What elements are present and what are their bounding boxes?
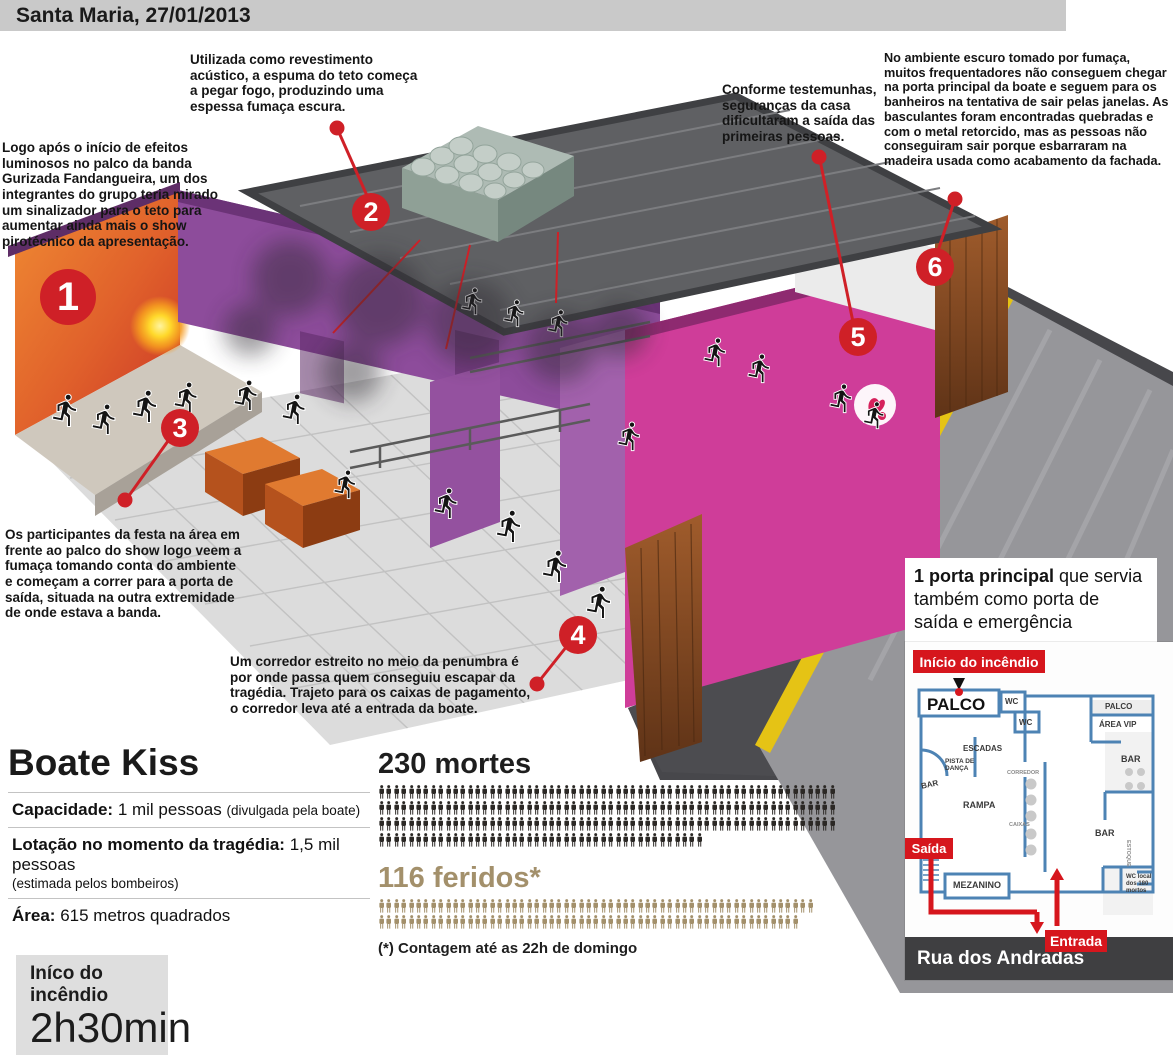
room-rampa: RAMPA [963,800,995,810]
fire-start-box: Iníco do incêndio 2h30min [16,955,168,1055]
fire-origin-tag: Início do incêndio [913,650,1045,673]
header-bar: Santa Maria, 27/01/2013 [0,0,1066,31]
stat-occupancy: Lotação no momento da tragédia: 1,5 mil … [8,827,370,898]
main-door-note: 1 porta principal que servia também como… [905,558,1157,643]
deaths-pictograms [378,785,848,848]
callout-3-text: Os participantes da festa na área em fre… [5,527,243,621]
stat-capacity-value: 1 mil pessoas [113,800,226,819]
injured-title: 116 feridos* [378,862,848,895]
deaths-title: 230 mortes [378,748,848,781]
stat-occupancy-label: Lotação no momento da tragédia: [12,835,285,854]
room-wc3: WC local dos 180 mortos [1126,874,1152,896]
step-badge-5: 5 [839,318,877,356]
room-mezanino: MEZANINO [953,880,1001,890]
casualties-panel: 230 mortes 116 feridos* (*) Contagem até… [378,748,848,957]
step-badge-6: 6 [916,248,954,286]
room-estoque: ESTOQUE [1125,840,1131,867]
exit-tag: Saída [905,838,953,859]
floor-plan-panel: Início do incêndio PALCO WC PALCO ÁREA V… [905,642,1173,980]
room-caixas: CAIXAS [1009,822,1030,828]
stat-area: Área: 615 metros quadrados [8,898,370,933]
page-title: Santa Maria, 27/01/2013 [16,4,251,28]
stat-occupancy-note: (estimada pelos bombeiros) [12,876,370,891]
room-pista: PISTA DE DANÇA [945,758,987,773]
fire-start-label: Iníco do incêndio [30,963,156,1007]
room-bar-mid: BAR [1095,828,1115,838]
callout-1-text: Logo após o início de efeitos luminosos … [2,140,242,250]
room-wc2: WC [1019,718,1032,727]
callout-2-text: Utilizada como revestimento acústico, a … [190,52,418,115]
fire-start-time: 2h30min [30,1007,156,1049]
callout-6-text: No ambiente escuro tomado por fumaça, mu… [884,51,1172,169]
stat-capacity: Capacidade: 1 mil pessoas (divulgada pel… [8,792,370,827]
count-footnote: (*) Contagem até as 22h de domingo [378,940,848,957]
room-bar-right: BAR [1121,754,1141,764]
partition-wall [430,362,500,548]
stat-area-value: 615 metros quadrados [55,906,230,925]
stat-capacity-note: (divulgada pela boate) [226,803,360,818]
room-area-vip: ÁREA VIP [1099,720,1137,729]
club-info-panel: Boate Kiss Capacidade: 1 mil pessoas (di… [8,742,370,1055]
step-badge-1: 1 [40,269,96,325]
stat-capacity-label: Capacidade: [12,800,113,819]
step-badge-4: 4 [559,616,597,654]
club-name: Boate Kiss [8,742,370,784]
room-palco: PALCO [927,695,985,715]
stat-area-label: Área: [12,906,55,925]
callout-4-text: Um corredor estreito no meio da penumbra… [230,654,542,717]
room-corredor: CORREDOR [1007,770,1039,776]
door-note-bold: 1 porta principal [914,566,1054,586]
street-name-bar: Rua dos Andradas [905,937,1173,980]
room-escadas: ESCADAS [963,744,1002,753]
step-badge-3: 3 [161,409,199,447]
entrance-tag: Entrada [1045,930,1107,952]
room-wc1: WC [1005,697,1018,706]
callout-5-text: Conforme testemunhas, seguranças da casa… [722,82,880,145]
room-palco2: PALCO [1105,702,1132,711]
step-badge-2: 2 [352,193,390,231]
injured-pictograms [378,899,848,930]
